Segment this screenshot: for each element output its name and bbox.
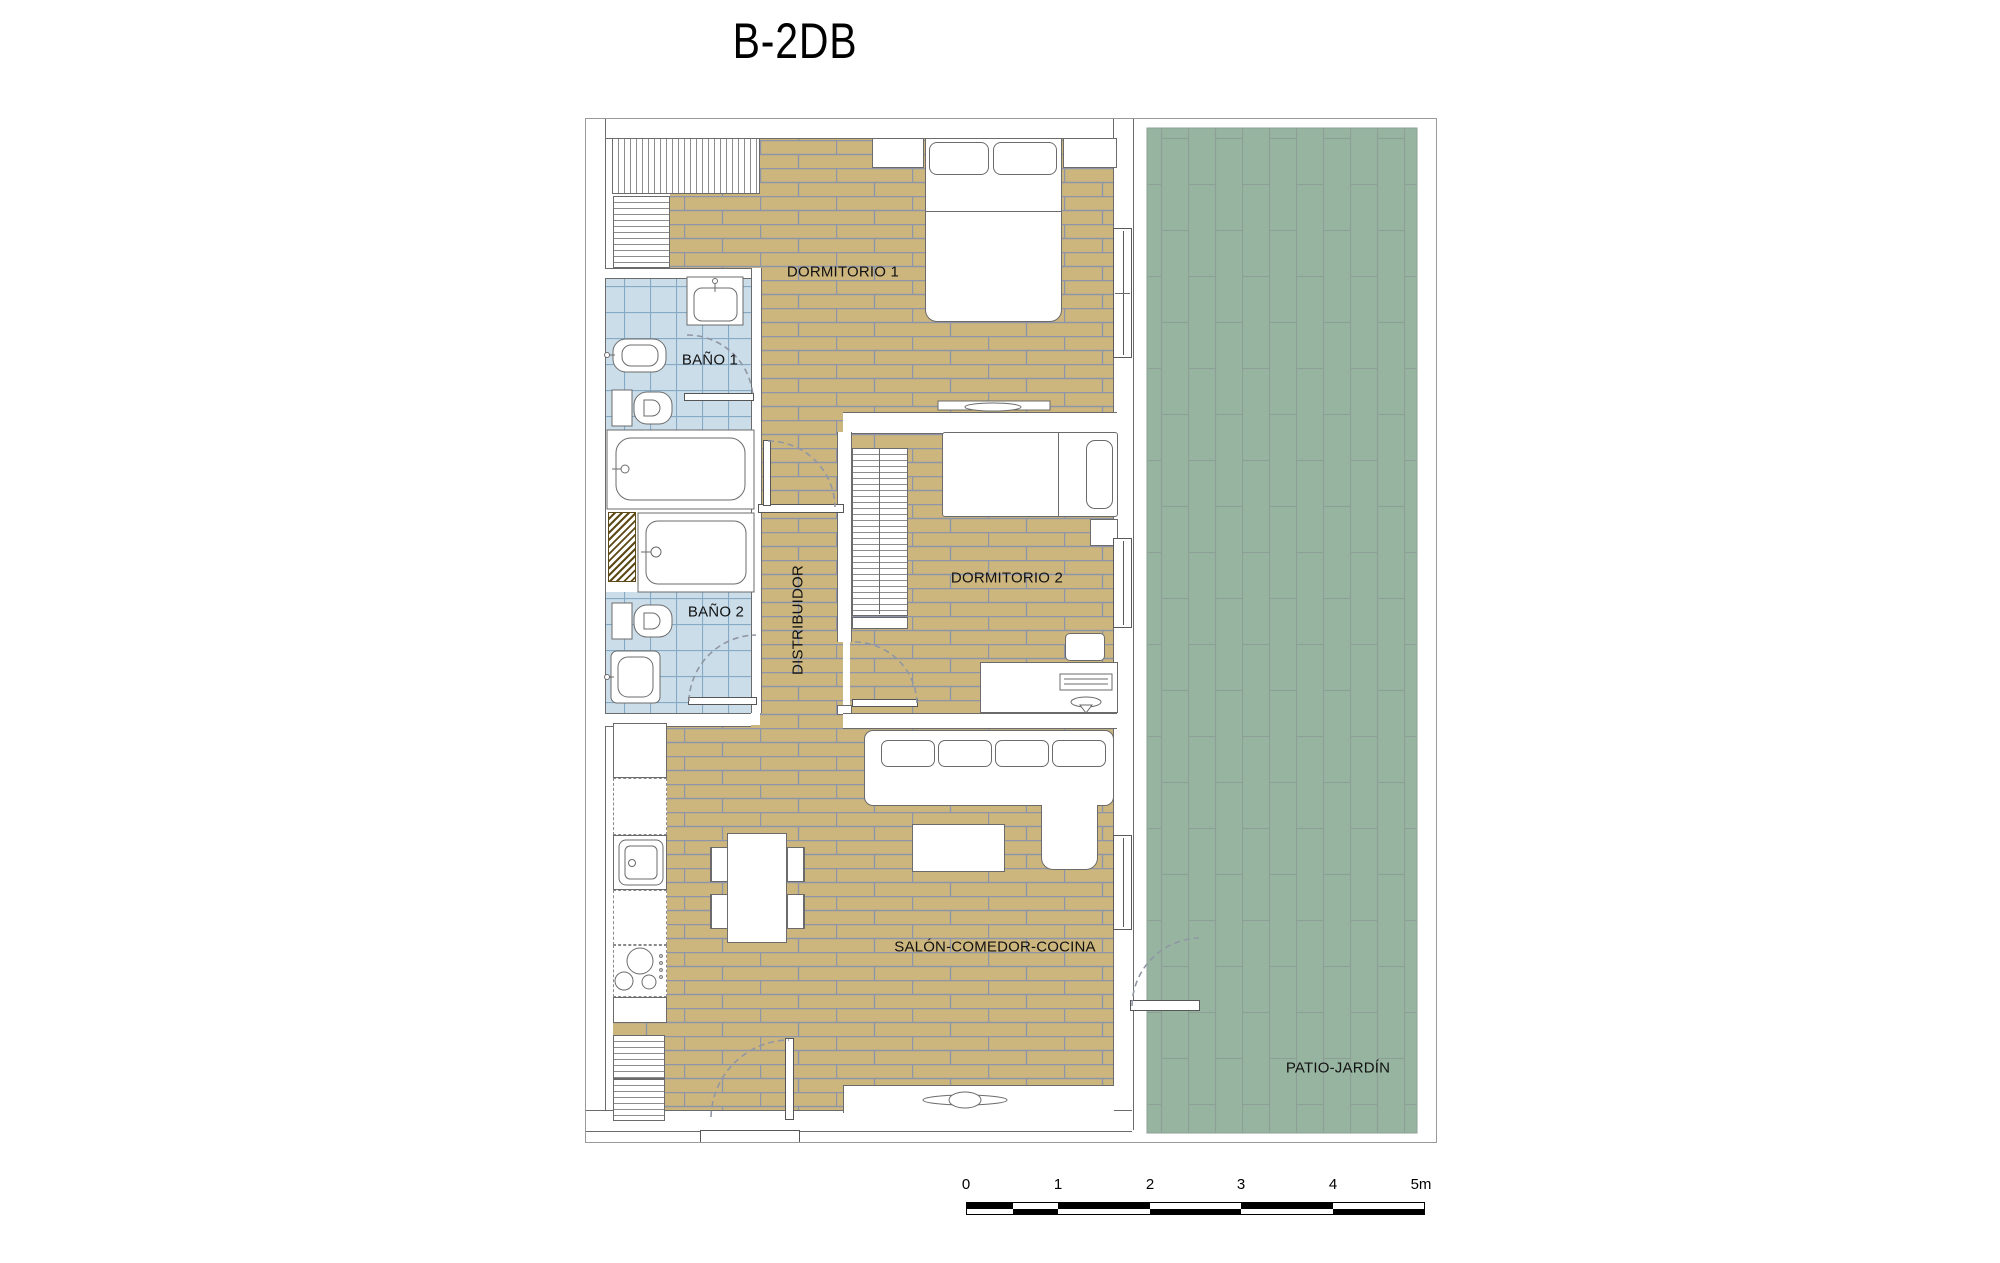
label-bano2: BAÑO 2 (688, 604, 744, 621)
plan-title: B-2DB (733, 12, 858, 70)
door-patio-opening (1114, 996, 1131, 1014)
window-dorm2 (1113, 538, 1132, 628)
label-bano1: BAÑO 1 (682, 352, 738, 369)
wall-left (585, 118, 606, 1130)
wall-bano1-top (605, 268, 760, 279)
door-patio-leaf (1130, 1000, 1200, 1011)
dining-chair-1 (710, 847, 728, 882)
window-dorm1 (1113, 228, 1132, 358)
window-salon-mullion (1123, 838, 1124, 927)
sofa-cushion-1 (881, 740, 935, 767)
wall-corridor-right-upper (837, 432, 852, 642)
pillow-dorm1-left (929, 142, 989, 175)
scale-tick-2: 2 (1146, 1176, 1154, 1193)
shelf-dormitorio2 (852, 617, 908, 629)
nightstand-dorm1-left (872, 138, 924, 168)
door-dorm2-leaf (852, 699, 918, 707)
bed-dorm1-foldline (926, 211, 1061, 212)
towel-radiator (608, 512, 636, 582)
scale-bar-strip (966, 1202, 1425, 1215)
wardrobe-dormitorio2 (852, 448, 908, 616)
kitchen-appliance-lower (613, 1079, 665, 1121)
tv-recess (843, 1085, 1114, 1113)
coffee-table (912, 824, 1005, 872)
window-dorm1-split (1115, 293, 1130, 294)
pillow-dorm1-right (993, 142, 1057, 175)
door-entrance-step (700, 1130, 800, 1143)
sofa-cushion-4 (1052, 740, 1106, 767)
nightstand-dorm1-right (1063, 138, 1117, 168)
kitchen-counter-2 (613, 890, 667, 945)
scale-tick-3: 3 (1237, 1176, 1245, 1193)
kitchen-counter-1 (613, 778, 667, 835)
kitchen-appliance-upper (613, 1035, 665, 1079)
label-salon: SALÓN-COMEDOR-COCINA (894, 939, 1096, 956)
wardrobe-dormitorio1 (612, 138, 760, 194)
sofa-chaise (1041, 805, 1098, 870)
dining-table (727, 833, 787, 943)
wall-dorm1-bottom (843, 412, 1117, 434)
desk-dorm2 (980, 662, 1118, 713)
dining-chair-3 (787, 847, 805, 882)
label-distribuidor: DISTRIBUIDOR (790, 565, 807, 675)
kitchen-cabinet (613, 723, 667, 778)
wall-corridor-left (751, 268, 762, 713)
scale-tick-1: 1 (1054, 1176, 1062, 1193)
kitchen-counter-3 (613, 997, 667, 1023)
kitchen-hob-module (613, 945, 667, 997)
label-dormitorio1: DORMITORIO 1 (787, 264, 899, 281)
door-entrance-leaf (785, 1038, 794, 1120)
shelf-unit-dormitorio1 (613, 196, 670, 268)
dining-chair-4 (787, 894, 805, 929)
label-dormitorio2: DORMITORIO 2 (951, 570, 1063, 587)
floor-plan: B-2DB DORMITORIO 1 BAÑO 1 BAÑO 2 DISTRIB… (0, 0, 2000, 1263)
window-dorm2-mullion (1123, 541, 1124, 625)
label-patio: PATIO-JARDÍN (1286, 1060, 1390, 1077)
bed-dorm2-foldline (1058, 433, 1059, 516)
scale-tick-4: 4 (1329, 1176, 1337, 1193)
scale-tick-0: 0 (962, 1176, 970, 1193)
window-salon (1113, 835, 1132, 930)
wardrobe-dormitorio2-divider (879, 449, 880, 614)
wall-bottom (585, 1110, 1132, 1132)
sofa-cushion-2 (938, 740, 992, 767)
dining-chair-2 (710, 894, 728, 929)
door-bano2-leaf (688, 697, 757, 705)
sofa-cushion-3 (995, 740, 1049, 767)
door-dorm1-leaf (763, 440, 771, 506)
wall-dorm2-bottom (843, 713, 1117, 729)
desk-chair-dorm2 (1065, 633, 1105, 661)
scale-tick-5: 5m (1411, 1176, 1432, 1193)
scale-bar-row-bottom (967, 1209, 1424, 1215)
pillow-dorm2 (1086, 440, 1113, 509)
door-bano1-leaf (684, 393, 754, 401)
kitchen-sink-module (613, 835, 667, 890)
wall-top (585, 118, 1131, 139)
scale-bar: 0 1 2 3 4 5m (966, 1176, 1426, 1218)
